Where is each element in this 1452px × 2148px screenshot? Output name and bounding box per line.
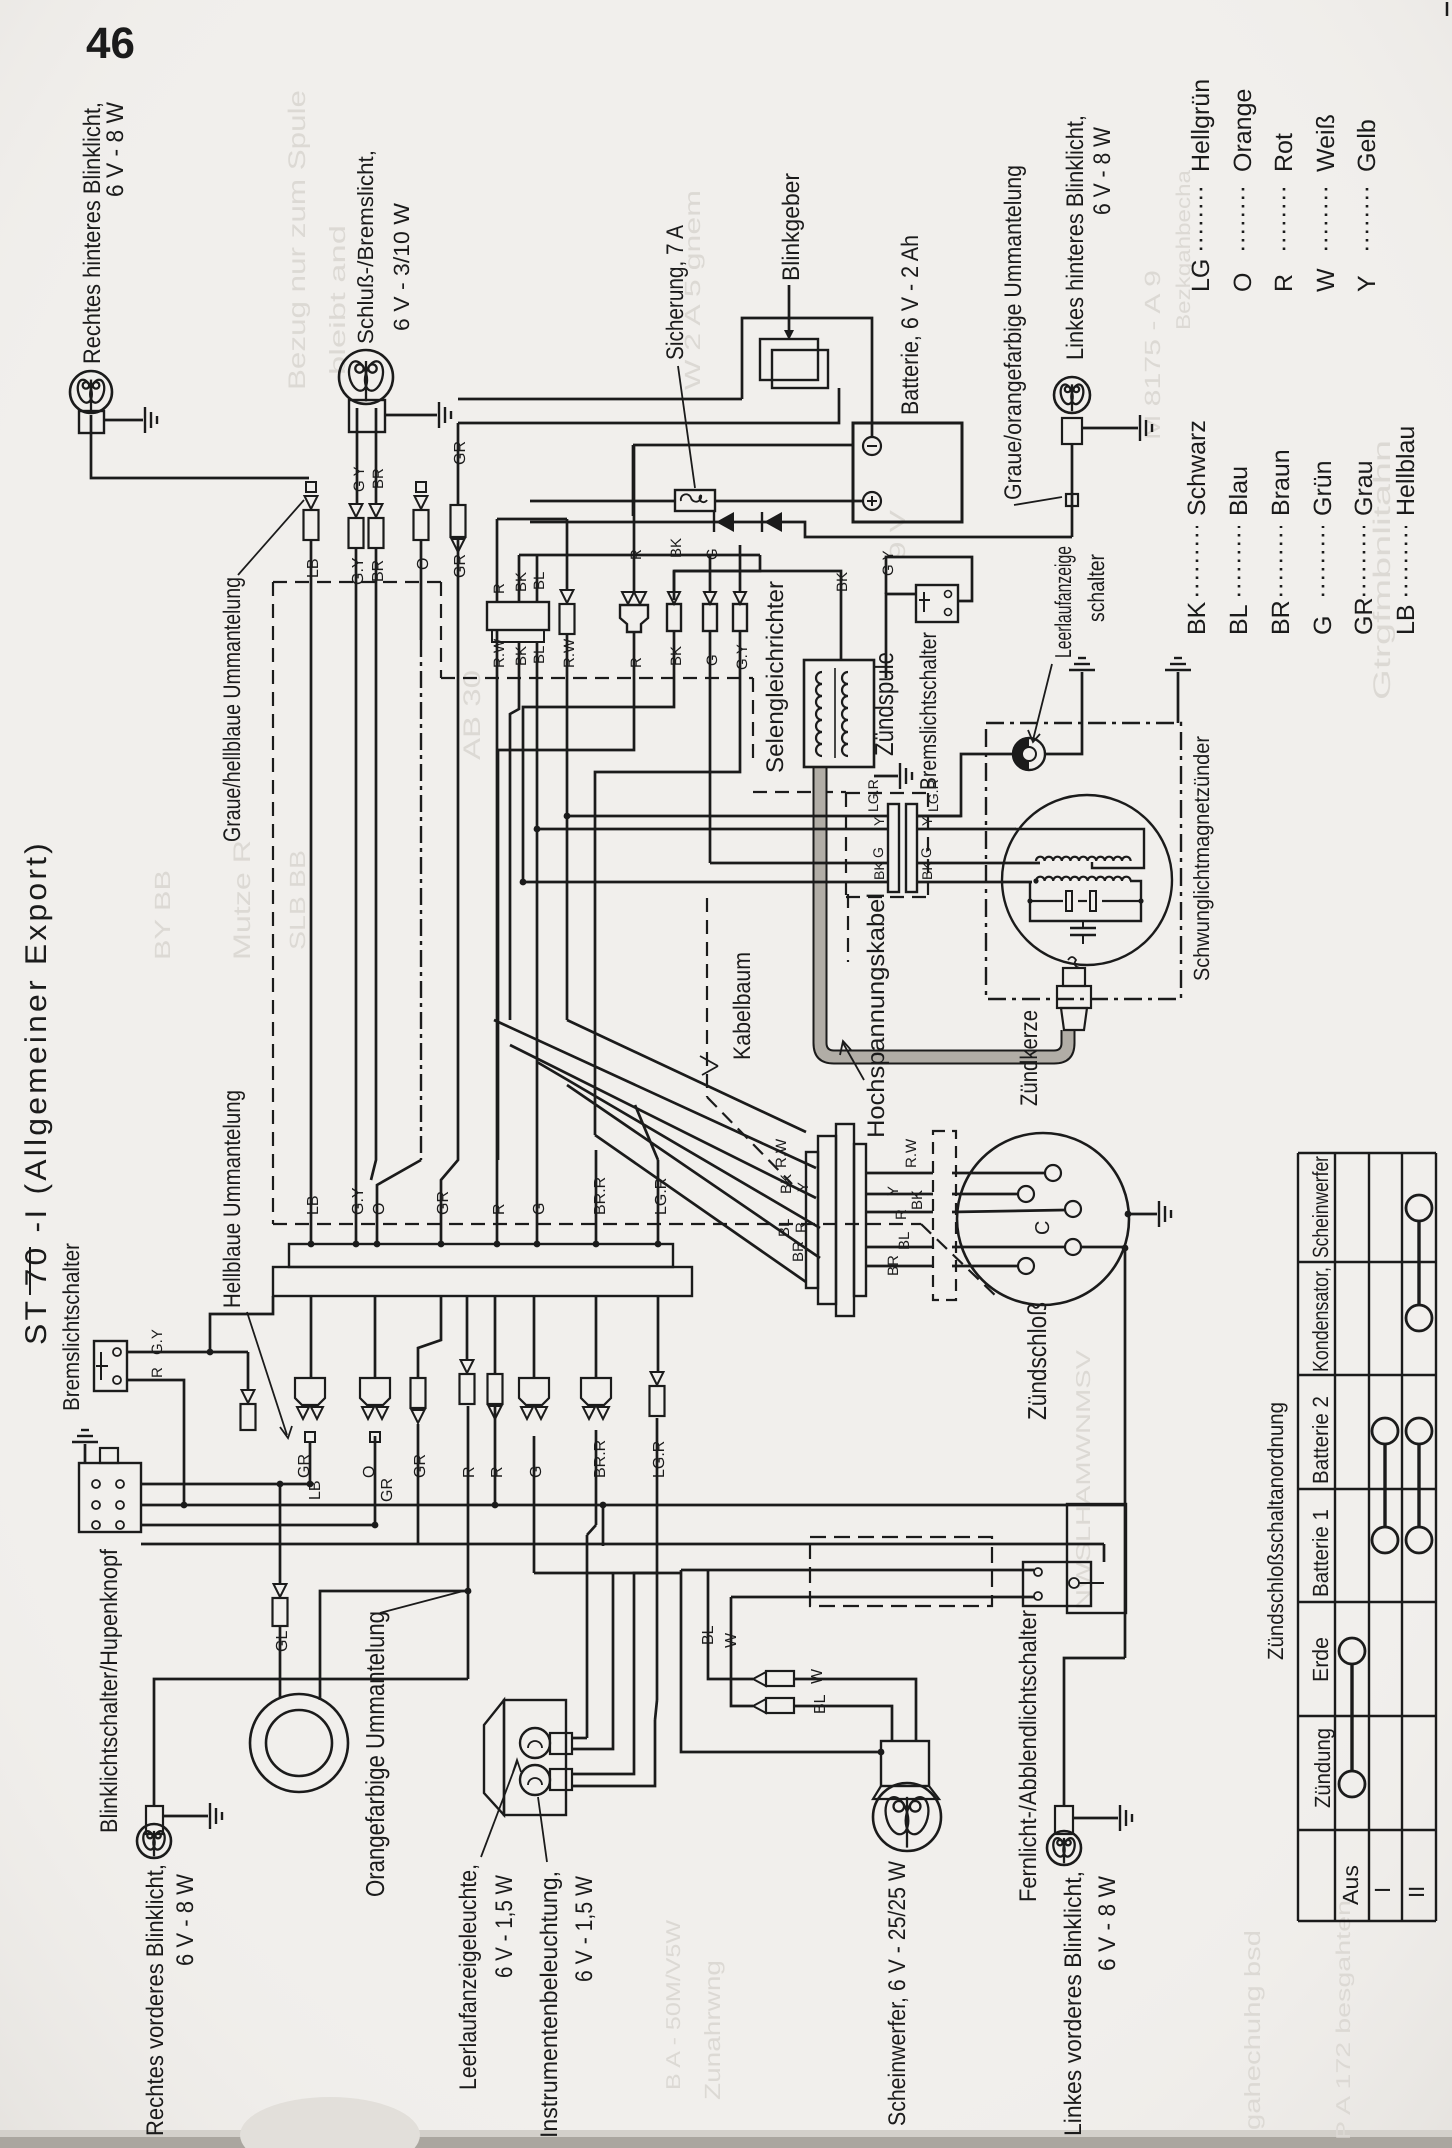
svg-text:Orange: Orange xyxy=(1229,89,1257,172)
svg-text:Sicherung, 7 A: Sicherung, 7 A xyxy=(662,225,689,360)
svg-text:R.W: R.W xyxy=(561,638,578,668)
svg-text:gahechuhg bsd: gahechuhg bsd xyxy=(1240,1930,1265,2130)
svg-text:Hellgrün: Hellgrün xyxy=(1187,79,1215,172)
svg-text:BR.R: BR.R xyxy=(592,1177,609,1215)
svg-text:Scheinwerfer, 6 V - 25/25 W: Scheinwerfer, 6 V - 25/25 W xyxy=(884,1861,911,2126)
svg-text:Rot: Rot xyxy=(1270,133,1298,172)
svg-text:BK: BK xyxy=(919,861,935,880)
svg-text:G: G xyxy=(531,1203,548,1215)
svg-text:SLB BB: SLB BB xyxy=(285,850,310,950)
svg-text:46: 46 xyxy=(86,19,135,68)
svg-text:Fernlicht-/Abblendlichtschalte: Fernlicht-/Abblendlichtschalter xyxy=(1015,1610,1042,1902)
svg-text:LG.R: LG.R xyxy=(925,779,941,812)
svg-text:R: R xyxy=(628,549,645,560)
svg-text:R: R xyxy=(149,1367,166,1378)
svg-text:LG.R: LG.R xyxy=(651,1441,668,1478)
svg-text:B A - 50M/V5W: B A - 50M/V5W xyxy=(663,1920,685,2090)
svg-text:Weiß: Weiß xyxy=(1312,114,1340,172)
svg-text:Bremslichtschalter: Bremslichtschalter xyxy=(915,632,941,790)
svg-text:LB: LB xyxy=(1392,604,1420,635)
svg-text:6 V - 1,5 W: 6 V - 1,5 W xyxy=(491,1875,518,1978)
svg-text:Y: Y xyxy=(871,816,887,826)
svg-text:LB: LB xyxy=(305,1195,322,1215)
svg-text:GR: GR xyxy=(435,1191,452,1215)
svg-text:BK: BK xyxy=(1183,601,1211,635)
svg-text:6 V - 1,5 W: 6 V - 1,5 W xyxy=(571,1876,598,1982)
svg-text:bleibt and: bleibt and xyxy=(325,225,350,375)
svg-text:O: O xyxy=(415,558,432,570)
svg-text:LB: LB xyxy=(305,558,322,578)
svg-text:R: R xyxy=(491,1203,508,1215)
svg-text:LG.R: LG.R xyxy=(865,779,881,812)
svg-text:BL: BL xyxy=(776,1219,793,1237)
svg-text:GR: GR xyxy=(412,1454,429,1478)
svg-text:BL: BL xyxy=(1225,604,1253,635)
svg-text:BR: BR xyxy=(1267,600,1295,635)
svg-text:W: W xyxy=(723,1632,740,1648)
svg-text:6 V - 8 W: 6 V - 8 W xyxy=(1094,1876,1121,1971)
svg-text:G Y: G Y xyxy=(880,550,897,576)
svg-text:G: G xyxy=(528,1466,545,1478)
svg-text:6 V - 8 W: 6 V - 8 W xyxy=(172,1874,199,1966)
svg-text:I: I xyxy=(1370,1887,1395,1893)
svg-text:R: R xyxy=(489,1466,506,1478)
svg-text:Hellblaue Ummantelung: Hellblaue Ummantelung xyxy=(219,1090,246,1308)
svg-text:G.Y: G.Y xyxy=(350,1187,367,1215)
svg-text:R.W: R.W xyxy=(491,638,508,668)
svg-text:Blinkgeber: Blinkgeber xyxy=(778,173,805,281)
svg-text:Orangefarbige Ummantelung: Orangefarbige Ummantelung xyxy=(360,1611,390,1897)
svg-text:BR: BR xyxy=(790,1241,807,1262)
svg-text:Kondensator,: Kondensator, xyxy=(1308,1267,1333,1372)
svg-text:BK: BK xyxy=(871,861,887,880)
svg-text:G: G xyxy=(1309,616,1337,635)
svg-text:BR.R: BR.R xyxy=(592,1440,609,1478)
svg-text:Blinklichtschalter/Hupenknopf: Blinklichtschalter/Hupenknopf xyxy=(96,1549,123,1833)
svg-text:6 V - 3/10 W: 6 V - 3/10 W xyxy=(389,203,414,331)
svg-text:G: G xyxy=(704,654,721,666)
svg-text:Batterie 2: Batterie 2 xyxy=(1308,1396,1333,1484)
svg-text:6 V - 8 W: 6 V - 8 W xyxy=(1089,127,1116,215)
svg-text:Y: Y xyxy=(885,1186,902,1196)
svg-text:BK: BK xyxy=(668,538,685,558)
svg-text:R: R xyxy=(793,1222,810,1233)
svg-text:R: R xyxy=(461,1466,478,1478)
svg-text:G: G xyxy=(918,847,934,858)
svg-text:Rechtes vorderes Blinklicht,: Rechtes vorderes Blinklicht, xyxy=(142,1864,169,2136)
svg-text:BL: BL xyxy=(896,1232,913,1250)
svg-text:Schluß-/Bremslicht,: Schluß-/Bremslicht, xyxy=(353,150,378,344)
svg-text:P A 172 besgahten: P A 172 besgahten xyxy=(1333,1900,1355,2140)
svg-text:Aus: Aus xyxy=(1338,1865,1363,1905)
svg-text:M 8175 - A 9: M 8175 - A 9 xyxy=(1140,270,1165,440)
svg-text:Y: Y xyxy=(1353,275,1381,292)
svg-text:R.W: R.W xyxy=(773,1138,790,1168)
svg-text:Bezug nur zum Spule: Bezug nur zum Spule xyxy=(284,90,311,390)
svg-text:AB 30: AB 30 xyxy=(459,670,486,760)
svg-text:W: W xyxy=(1312,268,1340,292)
svg-text:BL: BL xyxy=(700,1625,717,1645)
svg-text:GR: GR xyxy=(452,554,469,578)
svg-text:Hochspannungskabel: Hochspannungskabel xyxy=(863,893,890,1138)
svg-text:Zündspule: Zündspule xyxy=(869,652,899,756)
svg-text:Braun: Braun xyxy=(1267,449,1295,516)
svg-text:Zündschloßschaltanordnung: Zündschloßschaltanordnung xyxy=(1263,1402,1288,1660)
svg-text:Zündkerze: Zündkerze xyxy=(1016,1010,1043,1106)
svg-text:Zündschloß: Zündschloß xyxy=(1022,1302,1052,1420)
svg-text:GL: GL xyxy=(274,1631,291,1652)
svg-text:Erde: Erde xyxy=(1308,1637,1333,1682)
svg-text:BR: BR xyxy=(370,560,387,582)
svg-text:Linkes vorderes Blinklicht,: Linkes vorderes Blinklicht, xyxy=(1060,1871,1087,2136)
svg-text:W: W xyxy=(809,1668,826,1684)
svg-text:R: R xyxy=(893,1209,910,1220)
svg-text:Mutze R: Mutze R xyxy=(229,840,256,960)
svg-text:Y: Y xyxy=(795,1182,812,1192)
svg-text:G: G xyxy=(870,847,886,858)
svg-text:Gelb: Gelb xyxy=(1353,119,1381,172)
svg-text:BY BB: BY BB xyxy=(150,870,175,960)
svg-text:G Y: G Y xyxy=(351,466,368,492)
svg-text:Schwunglichtmagnetzünder: Schwunglichtmagnetzünder xyxy=(1189,736,1214,981)
svg-text:Blau: Blau xyxy=(1225,466,1253,516)
svg-text:R: R xyxy=(1270,274,1298,292)
svg-text:G: G xyxy=(704,548,721,560)
svg-text:6 V - 8 W: 6 V - 8 W xyxy=(102,102,129,197)
svg-text:BL: BL xyxy=(531,572,548,590)
svg-text:BL: BL xyxy=(531,646,548,664)
svg-text:Scheinwerfer: Scheinwerfer xyxy=(1308,1156,1333,1258)
svg-text:Graue/orangefarbige Ummantelun: Graue/orangefarbige Ummantelung xyxy=(1000,165,1027,500)
svg-text:BK: BK xyxy=(513,572,530,592)
svg-text:Linkes hinteres Blinklicht,: Linkes hinteres Blinklicht, xyxy=(1062,115,1089,360)
svg-text:schalter: schalter xyxy=(1083,554,1109,622)
svg-text:Y: Y xyxy=(919,816,935,826)
svg-text:BR: BR xyxy=(370,468,387,489)
svg-text:BR: BR xyxy=(885,1255,902,1276)
svg-text:II: II xyxy=(1404,1886,1429,1898)
svg-text:C: C xyxy=(1032,1221,1054,1235)
svg-text:LG: LG xyxy=(1187,259,1215,292)
svg-text:R.W: R.W xyxy=(903,1138,920,1168)
svg-text:O: O xyxy=(371,1203,388,1215)
svg-text:Leerlaufanzeigeleuchte,: Leerlaufanzeigeleuchte, xyxy=(455,1864,482,2090)
svg-text:BK: BK xyxy=(668,646,685,666)
svg-text:Leerlaufanzeige: Leerlaufanzeige xyxy=(1050,546,1076,658)
svg-text:BK: BK xyxy=(513,646,530,666)
svg-text:Bezkgahbecha: Bezkgahbecha xyxy=(1173,169,1195,330)
svg-text:R: R xyxy=(491,583,508,594)
svg-text:R: R xyxy=(628,657,645,668)
svg-text:Grau: Grau xyxy=(1350,460,1378,516)
svg-text:GR: GR xyxy=(379,1478,396,1502)
svg-text:Zündung: Zündung xyxy=(1310,1728,1335,1808)
svg-text:Hellblau: Hellblau xyxy=(1392,426,1420,516)
svg-text:Batterie, 6 V - 2 Ah: Batterie, 6 V - 2 Ah xyxy=(897,235,924,415)
svg-text:Zunahrwng: Zunahrwng xyxy=(700,1960,725,2100)
svg-text:BK: BK xyxy=(834,572,851,592)
svg-text:BL: BL xyxy=(812,1694,829,1714)
svg-text:BK: BK xyxy=(778,1174,795,1194)
svg-text:ST 70 -I (Allgemeiner Export): ST 70 -I (Allgemeiner Export) xyxy=(20,840,53,1345)
svg-text:Selengleichrichter: Selengleichrichter xyxy=(762,581,789,773)
svg-text:O: O xyxy=(1229,273,1257,292)
svg-text:Instrumentenbeleuchtung,: Instrumentenbeleuchtung, xyxy=(536,1871,563,2138)
svg-text:GR: GR xyxy=(452,441,469,465)
svg-text:LG.R: LG.R xyxy=(653,1178,670,1215)
svg-text:Grün: Grün xyxy=(1309,460,1337,516)
svg-text:Batterie 1: Batterie 1 xyxy=(1308,1509,1333,1597)
svg-text:GR: GR xyxy=(1350,598,1378,636)
svg-text:Kabelbaum: Kabelbaum xyxy=(729,952,756,1060)
svg-text:G.Y: G.Y xyxy=(734,644,751,670)
svg-text:Schwarz: Schwarz xyxy=(1183,420,1211,516)
svg-text:G.Y: G.Y xyxy=(350,557,367,585)
svg-text:Graue/hellblaue Ummantelung: Graue/hellblaue Ummantelung xyxy=(219,577,246,842)
svg-text:Bremslichtschalter: Bremslichtschalter xyxy=(58,1243,84,1411)
svg-text:BK: BK xyxy=(909,1190,926,1210)
